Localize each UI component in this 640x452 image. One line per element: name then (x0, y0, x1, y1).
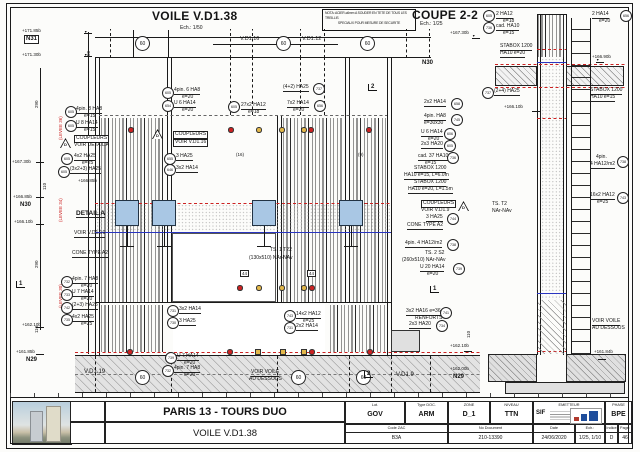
annotation-label: VOIR V.D1.16 (173, 139, 208, 147)
level-label: +166.10b (504, 104, 523, 109)
rebar-dot (301, 349, 306, 354)
annotation-label: (130x510) NAr-NAv (249, 256, 293, 262)
annotation-label: TS. T2 (492, 202, 507, 208)
rebar-mark-bubble: 605 (61, 153, 73, 165)
rebar-mark-bubble: 733 (61, 289, 73, 301)
rebar-dot (228, 127, 233, 132)
adjacent-wall-label: V.D1.9 (396, 372, 414, 379)
rebar-mark-bubble: 654 (162, 100, 174, 112)
adjacent-wall-label: V.D1.19 (84, 369, 105, 376)
texture-vb (101, 305, 165, 352)
drawing-line (349, 356, 350, 392)
drawing-line (168, 30, 169, 57)
rebar-dot (128, 127, 133, 132)
drawing-line (157, 246, 171, 247)
annotation-label: (260x510) NAr-NAv (402, 258, 446, 264)
drawing-line (127, 226, 128, 246)
texture-vb (330, 305, 387, 352)
annotation-label: e=25 (597, 200, 608, 206)
drawing-line (464, 351, 472, 352)
drawing-line (40, 68, 41, 330)
drawing-line (36, 162, 44, 163)
level-label: +171.85b (22, 28, 41, 33)
drawing-line (36, 197, 44, 198)
rebar-mark-bubble: 605 (483, 10, 495, 22)
rebar-mark-bubble: 656 (314, 100, 326, 112)
wall-thickness-circle: 60 (135, 36, 150, 51)
rebar-mark-bubble: 738 (447, 239, 459, 251)
annotation-label: 2x2 HA14 (424, 100, 446, 107)
annotation-label: CONE TYPE A2 (72, 251, 108, 258)
pour-lift-label: (LEVEE 36) (58, 116, 63, 140)
drawing-line (537, 293, 566, 294)
drawing-line (95, 302, 391, 303)
drawing-line (472, 38, 480, 39)
annotation-label: AU DESSOUS (592, 326, 625, 332)
rebar-mark-bubble: 734 (436, 320, 448, 332)
level-label: +166.85b (13, 194, 32, 199)
rebar-dot (279, 127, 284, 132)
rebar-mark-bubble: 735 (61, 314, 73, 326)
drawing-rect (391, 330, 420, 352)
annotation-label: e=20 (293, 108, 304, 114)
annotation-label: 2x2 HA14 (296, 324, 318, 331)
annotation-label: e=15 (503, 31, 514, 37)
section-flag: 1 (16, 281, 25, 288)
rebar-mark-bubble: 736 (447, 152, 459, 164)
wall-thickness-circle: 60 (291, 370, 306, 385)
rebar-dot (279, 285, 284, 290)
rebar-dot (227, 349, 232, 354)
drawing-sheet: VOILE V.D1.38 Ech.: 1/50 NOTA: ACIER ⌀6m… (0, 0, 640, 452)
rebar-mark-bubble: 743 (284, 310, 296, 322)
detail-title: DETAIL A (76, 210, 105, 218)
section-flag: 1 (430, 286, 439, 293)
annotation-label: e=20 (599, 19, 610, 25)
annotation-label: e=30x30 (424, 121, 443, 127)
level-label: +167.30b (450, 30, 469, 35)
rebar-dot (127, 349, 132, 354)
rebar-dot (367, 349, 372, 354)
annotation-label: VOIR V.D1.19 (74, 231, 105, 238)
drawing-line (257, 246, 271, 247)
drawing-line (36, 224, 44, 225)
drawing-line (10, 397, 629, 398)
rebar-mark-bubble: 732 (162, 365, 174, 377)
annotation-label: e=20 (184, 373, 195, 379)
annotation-label: HA10 e=20 (500, 51, 525, 58)
rebar-mark-bubble: 742 (61, 302, 73, 314)
annotation-label: 290 (34, 260, 39, 268)
annotation-label: COUPLEURS (173, 131, 208, 139)
annotation-label: 4pin. 4 HA12/m2 (405, 241, 442, 248)
level-grid-n31: N31 (24, 35, 39, 44)
drawing-line (429, 29, 430, 58)
annotation-label: e=20 (182, 108, 193, 114)
rebar-mark-bubble: 656 (620, 10, 632, 22)
drawing-line (590, 18, 591, 390)
section-flag: 2 (364, 371, 373, 378)
level-label: +162.10b (22, 322, 41, 327)
annotation-label: 4 HA12/m2 (590, 162, 615, 169)
annotation-label: 4pin. (596, 155, 607, 161)
adjacent-wall-label: V.D1.12 (302, 36, 321, 42)
annotation-label: (3x2+3) HA25 (70, 167, 101, 174)
annotation-label: 50 (86, 51, 91, 56)
texture-hatch (496, 67, 536, 85)
annotation-label: HA10 e=15 (590, 95, 615, 102)
drawing-line (537, 49, 566, 50)
annotation-label: e=20 (427, 272, 438, 278)
drawing-rect (252, 200, 276, 226)
rebar-mark-bubble: 738 (617, 156, 629, 168)
texture-vb (538, 15, 566, 57)
rebar-mark-bubble: 745 (451, 114, 463, 126)
drawing-line (351, 226, 352, 246)
texture-hatch (567, 355, 625, 381)
level-label: +162.00b (450, 366, 469, 371)
rebar-dot (301, 127, 306, 132)
drawing-line (75, 352, 480, 353)
annotation-label: TS. 1 T22 (270, 248, 292, 254)
drawing-line (110, 29, 111, 58)
annotation-label: (2+4) HA25 (494, 89, 520, 96)
rebar-dot (255, 349, 260, 354)
rebar-mark-bubble: 606 (444, 128, 456, 140)
annotation-label: 290 (34, 100, 39, 108)
rebar-mark-bubble: 731 (284, 322, 296, 334)
wall-thickness-circle: 60 (135, 370, 150, 385)
rebar-mark-bubble: 605 (162, 87, 174, 99)
level-grid-n30: N30 (422, 60, 433, 67)
level-grid-n30: N30 (20, 202, 31, 209)
annotation-label: 3 HA25 (179, 319, 196, 326)
rebar-mark-bubble: 605 (58, 166, 70, 178)
rebar-mark-bubble: 743 (617, 192, 629, 204)
texture-ladder (572, 18, 590, 390)
drawing-line (596, 62, 604, 63)
rebar-mark-bubble: 605 (228, 101, 240, 113)
adjacent-wall-label: V.D1.16 (240, 36, 259, 42)
drawing-line (406, 29, 407, 58)
level-grid-n29: N29 (453, 374, 464, 381)
level-label: +171.30b (22, 52, 41, 57)
level-grid-n29: N29 (26, 357, 37, 364)
rebar-mark-bubble: 737 (482, 87, 494, 99)
rebar-dot (308, 127, 313, 132)
drawing-line (345, 57, 346, 303)
annotation-label: 3 HA25 (176, 154, 193, 161)
rebar-mark-bubble: 605 (444, 140, 456, 152)
texture-hatch (538, 300, 566, 354)
rebar-mark-bubble: 646 (164, 164, 176, 176)
drawing-line (537, 118, 566, 119)
level-label: +161.85b (16, 349, 35, 354)
drawing-line (344, 246, 358, 247)
level-label: +167.30b (12, 159, 31, 164)
annotation-label: VOIR V.D1.9 (421, 208, 449, 214)
rebar-dot (366, 127, 371, 132)
drawing-line (430, 356, 431, 392)
rebar-dot (256, 285, 261, 290)
annotation-label: (9) (358, 152, 364, 157)
drawing-line (133, 30, 134, 57)
rebar-mark-bubble: 741 (440, 307, 452, 319)
pour-lift-label: (LEVEE 34) (58, 198, 63, 222)
annotation-label: 44 (307, 270, 316, 277)
annotation-label: (4+2) HA25 (283, 85, 309, 92)
wall-thickness-circle: 60 (276, 36, 291, 51)
rebar-dot (256, 127, 261, 132)
drawing-line (391, 57, 392, 355)
drawing-line (164, 226, 165, 246)
drawing-line (264, 226, 265, 246)
texture-stip (541, 58, 563, 300)
texture-hatch (489, 355, 536, 381)
drawing-line (349, 57, 350, 303)
drawing-line (598, 359, 606, 360)
annotation-label: 3x2 HA14 (179, 307, 201, 314)
annotation-label: 110 (42, 183, 47, 190)
rebar-mark-bubble: 744 (447, 213, 459, 225)
rebar-dot (309, 285, 314, 290)
rebar-dot (309, 349, 314, 354)
drawing-line (36, 354, 44, 355)
drawing-rect (339, 200, 363, 226)
wall-thickness-circle: 60 (360, 36, 375, 51)
rebar-mark-bubble: 737 (313, 83, 325, 95)
rebar-mark-bubble: 658 (451, 98, 463, 110)
annotation-label: 44 (240, 270, 249, 277)
drawing-line (95, 57, 431, 58)
level-label: +166.90b (592, 54, 611, 59)
level-label: +162.10b (450, 343, 469, 348)
annotation-label: 3 HA25 (426, 215, 443, 222)
drawing-line (99, 115, 387, 116)
annotation-label: e=18 (248, 110, 259, 116)
annotation-label: ▼ (84, 30, 87, 34)
annotation-label: (16) (236, 152, 244, 157)
annotation-label: VOIR DETAIL A (74, 143, 109, 149)
rebar-mark-bubble: 736 (483, 22, 495, 34)
annotation-label: HA10 e=20, L=1.5m (408, 187, 453, 194)
annotation-label: 2x3 HA20 (421, 142, 443, 149)
annotation-label: e=15 (84, 114, 95, 120)
rebar-dot (237, 285, 242, 290)
annotation-label: ▼ (596, 58, 599, 62)
annotation-label: e=15 (84, 128, 95, 134)
annotation-label: AU DESSOUS (249, 377, 282, 383)
drawing-line (391, 356, 392, 392)
rebar-mark-bubble: 731 (167, 305, 179, 317)
drawing-line (537, 62, 566, 63)
annotation-label: ▼ (472, 34, 475, 38)
drawing-rect (152, 200, 176, 226)
annotation-label: 2x3 HA20 (409, 322, 431, 329)
annotation-label: e=25 (81, 322, 92, 328)
annotation-label: NAr-NAv (492, 209, 512, 215)
drawing-line (120, 246, 134, 247)
rebar-mark-bubble: 732 (61, 276, 73, 288)
rebar-mark-bubble: 739 (165, 352, 177, 364)
rebar-dot (280, 349, 285, 354)
level-label: +166.85b (78, 178, 97, 183)
drawing-rect (115, 200, 139, 226)
rebar-mark-bubble: 739 (453, 263, 465, 275)
drawing-line (532, 111, 540, 112)
drawing-rect (172, 233, 276, 302)
drawing-line (495, 64, 625, 65)
section-flag: 2 (368, 84, 377, 91)
annotation-label: 3x2 HA14 (176, 166, 198, 173)
rebar-dot (301, 285, 306, 290)
level-label: +161.84b (594, 349, 613, 354)
rebar-mark-bubble: 605 (65, 106, 77, 118)
rebar-mark-bubble: 730 (167, 317, 179, 329)
level-label: +166.10b (14, 219, 33, 224)
rebar-mark-bubble: 605 (65, 120, 77, 132)
annotation-label: CONE TYPE A2 (407, 223, 443, 230)
annotation-label: (2+3) HA25 (72, 303, 98, 310)
annotation-label: 110 (466, 331, 471, 338)
annotation-label: TS. 2 S2 (425, 251, 444, 257)
